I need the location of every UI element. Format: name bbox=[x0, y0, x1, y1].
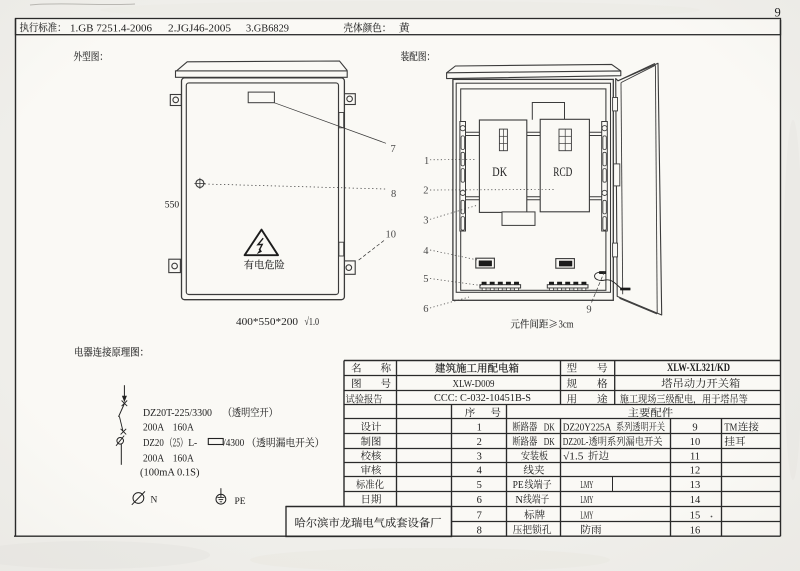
svg-text:200A: 200A bbox=[143, 422, 164, 434]
svg-text:2: 2 bbox=[423, 186, 428, 197]
svg-text:3: 3 bbox=[423, 215, 428, 226]
svg-text:DK: DK bbox=[492, 165, 507, 179]
svg-text:DK: DK bbox=[544, 422, 555, 433]
svg-text:PE: PE bbox=[513, 480, 524, 491]
svg-text:9: 9 bbox=[692, 422, 697, 433]
svg-text:7: 7 bbox=[477, 511, 482, 522]
svg-text:5: 5 bbox=[477, 480, 482, 491]
svg-text:4: 4 bbox=[423, 246, 429, 257]
svg-text:6: 6 bbox=[477, 495, 482, 506]
svg-text:DZ20L-: DZ20L- bbox=[563, 437, 589, 448]
svg-text:10: 10 bbox=[386, 230, 397, 241]
svg-text:CCC: C-032-10451B-S: CCC: C-032-10451B-S bbox=[434, 392, 531, 404]
svg-text:DZ20T-225/3300: DZ20T-225/3300 bbox=[143, 407, 212, 419]
svg-text:N: N bbox=[151, 496, 158, 506]
svg-text:XLW-XL321/KD: XLW-XL321/KD bbox=[667, 362, 730, 374]
svg-text:11: 11 bbox=[690, 451, 700, 462]
svg-text:200A: 200A bbox=[143, 452, 164, 464]
svg-text:1: 1 bbox=[424, 156, 429, 167]
svg-text:LMY: LMY bbox=[580, 495, 593, 506]
svg-text:3.GB6829: 3.GB6829 bbox=[246, 22, 289, 34]
svg-text:12: 12 bbox=[690, 466, 701, 477]
svg-text:160A: 160A bbox=[173, 452, 194, 464]
svg-text:1: 1 bbox=[477, 422, 482, 433]
svg-text:15: 15 bbox=[690, 511, 701, 522]
svg-text:160A: 160A bbox=[173, 422, 194, 434]
svg-text:2: 2 bbox=[477, 437, 482, 448]
svg-text:2.JGJ46-2005: 2.JGJ46-2005 bbox=[168, 22, 232, 34]
svg-text:DK: DK bbox=[544, 437, 555, 448]
svg-text:3: 3 bbox=[477, 451, 482, 462]
svg-text:16: 16 bbox=[690, 525, 701, 536]
svg-text:/4300: /4300 bbox=[223, 437, 244, 449]
svg-text:LMY: LMY bbox=[580, 511, 593, 522]
svg-text:6: 6 bbox=[423, 304, 428, 315]
svg-text:√1.5: √1.5 bbox=[563, 450, 584, 462]
svg-text:14: 14 bbox=[690, 495, 701, 506]
svg-text:9: 9 bbox=[775, 6, 781, 20]
svg-text:√1.0: √1.0 bbox=[305, 316, 320, 328]
svg-text:550: 550 bbox=[165, 200, 180, 210]
svg-text:L-: L- bbox=[188, 437, 197, 449]
svg-text:3cm: 3cm bbox=[559, 320, 574, 331]
svg-text:8: 8 bbox=[391, 189, 396, 200]
svg-text:1.GB 7251.4-2006: 1.GB 7251.4-2006 bbox=[70, 22, 152, 34]
svg-text:(100mA 0.1S): (100mA 0.1S) bbox=[140, 466, 200, 478]
svg-text:13: 13 bbox=[690, 480, 701, 491]
svg-text:4: 4 bbox=[477, 466, 483, 477]
svg-text:7: 7 bbox=[391, 144, 396, 155]
svg-text:XLW-D009: XLW-D009 bbox=[453, 378, 495, 390]
svg-text:10: 10 bbox=[690, 437, 701, 448]
svg-text:DZ20: DZ20 bbox=[143, 437, 164, 449]
svg-text:RCD: RCD bbox=[553, 165, 572, 179]
svg-text:8: 8 bbox=[477, 525, 482, 536]
svg-text:DZ20Y225A: DZ20Y225A bbox=[563, 422, 612, 433]
svg-text:TM: TM bbox=[724, 422, 738, 433]
svg-text:PE: PE bbox=[235, 497, 246, 507]
svg-text:LMY: LMY bbox=[580, 480, 593, 491]
svg-text:9: 9 bbox=[586, 304, 591, 315]
svg-text:400*550*200: 400*550*200 bbox=[236, 316, 299, 328]
svg-text:5: 5 bbox=[423, 274, 428, 285]
svg-text:N: N bbox=[515, 495, 523, 506]
